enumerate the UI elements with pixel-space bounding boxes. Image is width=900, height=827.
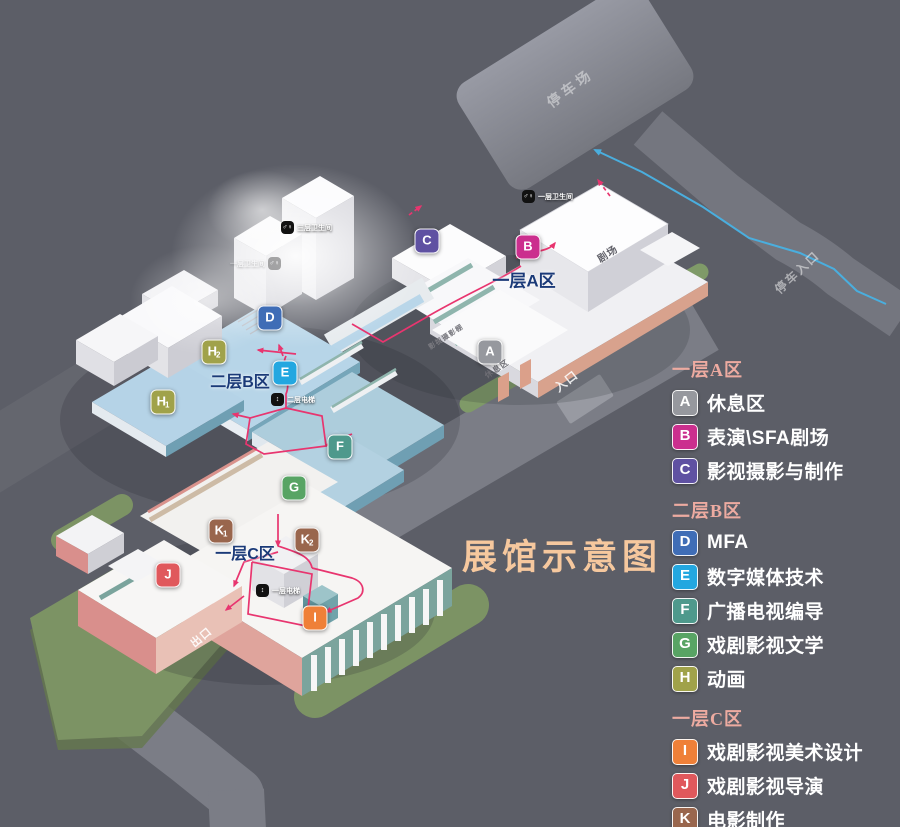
legend-badge-D: D bbox=[672, 530, 698, 556]
legend-item-A: A休息区 bbox=[672, 389, 897, 416]
legend-item-G: G戏剧影视文学 bbox=[672, 631, 897, 658]
legend-label-D: MFA bbox=[707, 532, 749, 554]
legend-item-E: E数字媒体技术 bbox=[672, 563, 897, 590]
legend-badge-A: A bbox=[672, 390, 698, 416]
legend-badge-K: K bbox=[672, 807, 698, 827]
legend-item-F: F广播电视编导 bbox=[672, 597, 897, 624]
legend-label-C: 影视摄影与制作 bbox=[707, 457, 844, 484]
legend-item-H: H动画 bbox=[672, 665, 897, 692]
legend-item-B: B表演\SFA剧场 bbox=[672, 423, 897, 450]
legend-label-G: 戏剧影视文学 bbox=[707, 631, 824, 658]
legend-item-K: K电影制作 bbox=[672, 806, 897, 827]
legend-badge-B: B bbox=[672, 424, 698, 450]
legend-badge-H: H bbox=[672, 666, 698, 692]
legend-label-F: 广播电视编导 bbox=[707, 597, 824, 624]
legend-item-I: I戏剧影视美术设计 bbox=[672, 738, 897, 765]
legend-badge-I: I bbox=[672, 739, 698, 765]
exhibition-map: 一层A区二层B区一层C区ABCDEFGH1H2IJK1K2♂♀一层卫生间♂♀三层… bbox=[0, 0, 900, 827]
legend-label-B: 表演\SFA剧场 bbox=[707, 423, 829, 450]
legend-label-J: 戏剧影视导演 bbox=[707, 772, 824, 799]
legend-section-a: 一层A区 A休息区B表演\SFA剧场C影视摄影与制作 bbox=[672, 356, 897, 484]
legend: 一层A区 A休息区B表演\SFA剧场C影视摄影与制作 二层B区 DMFAE数字媒… bbox=[672, 356, 897, 827]
legend-badge-E: E bbox=[672, 564, 698, 590]
legend-label-E: 数字媒体技术 bbox=[707, 563, 824, 590]
legend-item-C: C影视摄影与制作 bbox=[672, 457, 897, 484]
legend-heading-c: 一层C区 bbox=[672, 705, 897, 731]
legend-section-c: 一层C区 I戏剧影视美术设计J戏剧影视导演K电影制作 bbox=[672, 705, 897, 827]
legend-badge-C: C bbox=[672, 458, 698, 484]
legend-badge-F: F bbox=[672, 598, 698, 624]
legend-label-K: 电影制作 bbox=[707, 806, 785, 827]
legend-item-D: DMFA bbox=[672, 530, 897, 556]
legend-item-J: J戏剧影视导演 bbox=[672, 772, 897, 799]
legend-heading-a: 一层A区 bbox=[672, 356, 897, 382]
legend-badge-G: G bbox=[672, 632, 698, 658]
legend-label-A: 休息区 bbox=[707, 389, 766, 416]
legend-heading-b: 二层B区 bbox=[672, 497, 897, 523]
legend-label-H: 动画 bbox=[707, 665, 746, 692]
page-title: 展馆示意图 bbox=[462, 529, 662, 580]
legend-badge-J: J bbox=[672, 773, 698, 799]
legend-label-I: 戏剧影视美术设计 bbox=[707, 738, 863, 765]
legend-section-b: 二层B区 DMFAE数字媒体技术F广播电视编导G戏剧影视文学H动画 bbox=[672, 497, 897, 692]
